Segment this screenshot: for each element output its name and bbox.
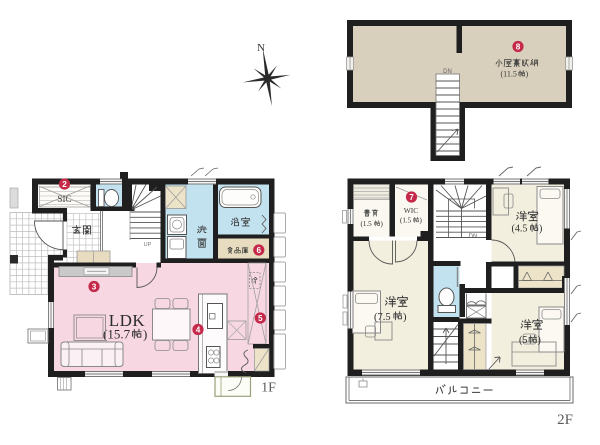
svg-text:): ) (539, 224, 542, 235)
svg-text:(5: (5 (519, 335, 527, 346)
svg-text:(1.5: (1.5 (400, 217, 412, 225)
svg-text:7: 7 (409, 193, 414, 202)
svg-text:(1.5: (1.5 (361, 220, 373, 228)
svg-text:WIC: WIC (404, 206, 419, 215)
svg-text:DN: DN (469, 234, 478, 240)
svg-text:N: N (257, 42, 265, 54)
svg-text:): ) (538, 335, 541, 346)
svg-text:2F: 2F (557, 412, 573, 428)
svg-text:(7.5: (7.5 (374, 312, 391, 323)
svg-text:8: 8 (516, 42, 521, 51)
svg-text:2: 2 (62, 180, 67, 189)
svg-text:3: 3 (92, 282, 97, 291)
svg-text:SIC: SIC (57, 194, 71, 204)
svg-text:4: 4 (196, 325, 201, 334)
svg-text:): ) (143, 327, 147, 342)
svg-text:UP: UP (144, 242, 152, 248)
svg-text:DN: DN (443, 69, 452, 75)
svg-text:6: 6 (257, 246, 262, 255)
svg-text:(15.7: (15.7 (103, 327, 131, 342)
svg-text:(4.5: (4.5 (512, 224, 528, 235)
svg-text:1F: 1F (261, 381, 276, 396)
svg-text:): ) (403, 312, 407, 323)
svg-text:5: 5 (258, 314, 263, 323)
svg-text:): ) (526, 70, 529, 79)
svg-text:(11.5: (11.5 (501, 70, 517, 79)
